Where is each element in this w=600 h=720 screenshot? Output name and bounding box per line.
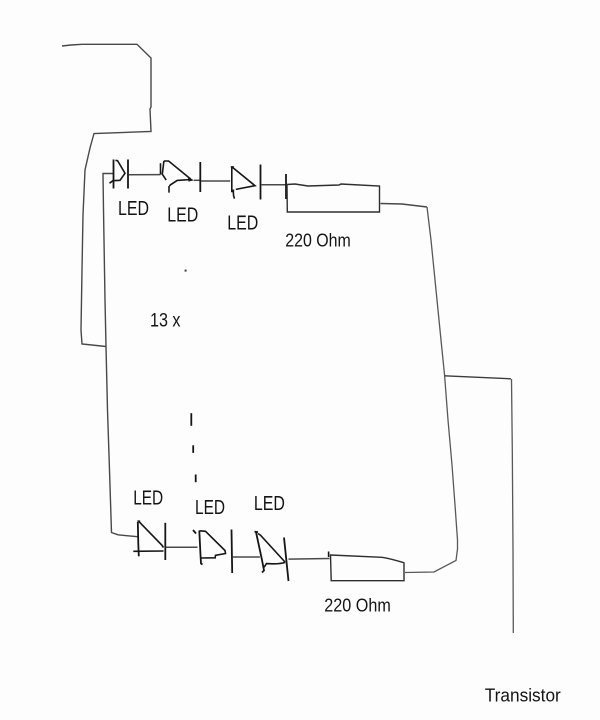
svg-text:LED: LED [118, 198, 149, 220]
svg-text:LED: LED [167, 205, 198, 227]
svg-text:Transistor: Transistor [485, 685, 561, 705]
svg-text:LED: LED [195, 497, 225, 519]
svg-text:LED: LED [227, 213, 258, 235]
svg-text:LED: LED [254, 493, 285, 515]
svg-text:220 Ohm: 220 Ohm [324, 596, 391, 616]
svg-text:13 x: 13 x [150, 310, 181, 332]
svg-text:220 Ohm: 220 Ohm [285, 230, 351, 250]
svg-text:LED: LED [133, 487, 163, 509]
